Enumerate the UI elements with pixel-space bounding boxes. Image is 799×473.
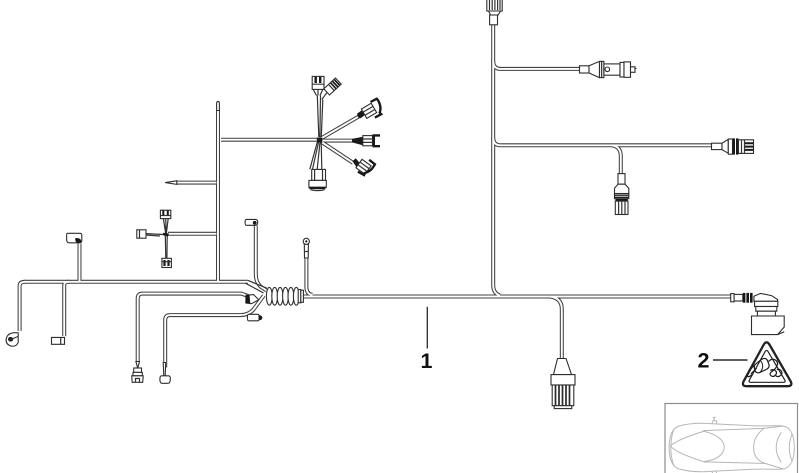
svg-text:2: 2 xyxy=(698,349,710,373)
svg-text:1: 1 xyxy=(421,349,433,373)
